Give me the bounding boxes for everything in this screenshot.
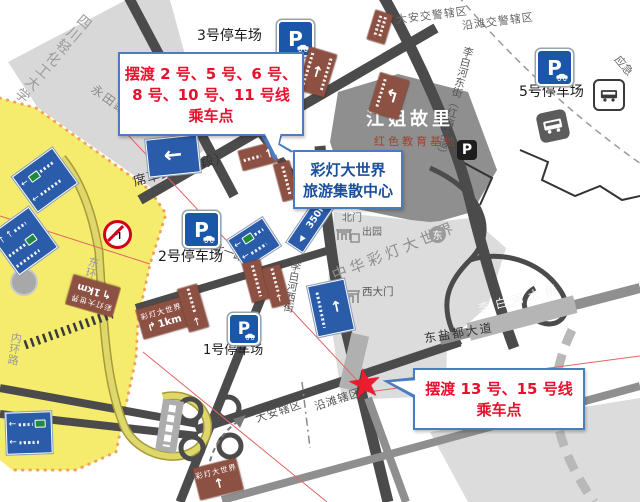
exit-icon — [350, 228, 360, 247]
sign-text-illegible — [250, 265, 261, 297]
sign-text-illegible — [19, 440, 41, 444]
jiangjie-parking-icon: P — [457, 140, 477, 160]
left-arrow-icon: ← — [163, 144, 184, 168]
callout-line: 彩灯大世界 — [310, 159, 385, 180]
sign-text-illegible — [270, 268, 279, 292]
callout-line: 旅游集散中心 — [303, 180, 393, 201]
direction-arrow-icon: ◀ — [295, 234, 306, 244]
car-icon — [244, 333, 256, 340]
callout-line: 乘车点 — [188, 105, 233, 126]
route-shield-icon — [241, 232, 255, 245]
bus-parking-icon — [535, 108, 571, 144]
shuttle-point-star: ★ — [344, 362, 385, 407]
up-arrow-icon: ↑ — [274, 292, 285, 305]
sign-text-illegible — [253, 228, 263, 236]
sign-text-illegible — [18, 422, 32, 425]
bus-stop-icon — [593, 79, 625, 111]
callout-shuttle-south: 摆渡 13 号、15 号线 乘车点 — [413, 368, 585, 430]
sign-text-illegible — [39, 161, 54, 173]
route-shield-icon — [34, 419, 45, 427]
car-icon — [202, 235, 216, 243]
sign-text-illegible — [281, 166, 292, 196]
sign-text-illegible — [316, 292, 326, 328]
traffic-guide-map: 四川轻化工大学 永田路 席草路（东段） 大安交警辖区 沿滩交警辖区 李白河东街（… — [0, 0, 640, 502]
jiangjie-sublabel: 红色教育基地 — [374, 136, 458, 149]
guide-sign-xicao-arrow: ← — [145, 134, 201, 177]
sign-text-illegible — [186, 288, 196, 314]
callout-line: 乘车点 — [476, 399, 521, 420]
parking2-icon: P — [183, 211, 220, 248]
uturn-left-icon: ↰ — [382, 85, 401, 108]
parking5-label: 5号停车场 — [519, 84, 584, 100]
left-turn-icon: ↰ — [112, 228, 122, 242]
parking1-icon: P — [228, 313, 260, 345]
sign-text-illegible — [14, 222, 27, 233]
car-icon — [555, 73, 569, 81]
callout-line: 摆渡 2 号、5 号、6 号、 — [125, 63, 297, 84]
parking5-icon: P — [536, 49, 573, 86]
sign-text-illegible — [250, 242, 267, 254]
turn-right-icon: ↱ — [146, 319, 158, 334]
up-arrow-icon: ↑ — [191, 314, 203, 329]
left-arrow-icon: ← — [9, 437, 17, 447]
callout-tourist-hub: 彩灯大世界 旅游集散中心 — [293, 150, 403, 209]
callout-line: 摆渡 13 号、15 号线 — [425, 378, 572, 399]
route-shield-icon — [25, 234, 39, 247]
east-gate-badge: 东 — [429, 226, 446, 243]
turn-left-icon: ↰ — [101, 287, 113, 302]
callout-line: 8 号、10 号、11 号线 — [132, 84, 290, 105]
no-left-turn-sign: ↰ — [103, 220, 132, 249]
gate-label-west: 西大门 — [362, 286, 394, 298]
minor-path — [520, 150, 640, 200]
parking1-label: 1号停车场 — [203, 344, 263, 359]
parking3-label: 3号停车场 — [197, 28, 262, 44]
gate-label-north: 北门 — [342, 213, 362, 225]
up-arrow-icon: ↑ — [328, 297, 344, 317]
sign-text-illegible — [8, 243, 26, 257]
gate-label-exit: 出园 — [362, 227, 382, 239]
sign-text-illegible — [244, 154, 262, 162]
callout-shuttle-north: 摆渡 2 号、5 号、6 号、 8 号、10 号、11 号线 乘车点 — [118, 52, 304, 136]
left-arrow-icon: ← — [9, 419, 17, 429]
area-logo-badge — [10, 268, 38, 296]
sign-text-illegible — [40, 180, 61, 197]
parking2-label: 2号停车场 — [158, 249, 223, 265]
guide-sign-yellow-3: ← ← — [5, 411, 52, 455]
up-arrow-icon: ↑ — [212, 476, 226, 493]
